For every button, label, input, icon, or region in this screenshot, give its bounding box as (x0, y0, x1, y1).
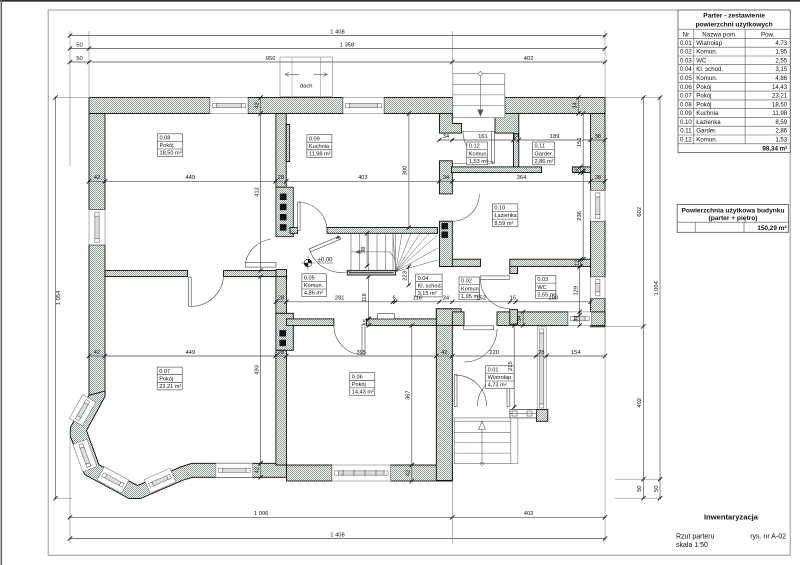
svg-text:8,59 m²: 8,59 m² (494, 221, 513, 227)
svg-text:402: 402 (637, 398, 643, 408)
svg-text:150,29 m²: 150,29 m² (757, 225, 786, 232)
svg-text:42: 42 (406, 470, 412, 476)
svg-text:Pokój: Pokój (160, 143, 174, 149)
svg-text:1 004: 1 004 (654, 280, 660, 295)
svg-text:Pokój: Pokój (159, 376, 173, 382)
svg-text:34: 34 (443, 296, 450, 302)
svg-text:0.02: 0.02 (680, 49, 692, 56)
svg-text:0.02: 0.02 (461, 279, 472, 285)
svg-text:WC: WC (537, 285, 546, 291)
svg-text:0.07: 0.07 (680, 93, 692, 100)
svg-text:Pokój: Pokój (696, 93, 711, 100)
svg-text:0.09: 0.09 (680, 110, 692, 117)
svg-text:Kl. schod.: Kl. schod. (696, 66, 723, 73)
svg-text:402: 402 (524, 56, 534, 62)
svg-text:98: 98 (361, 246, 367, 252)
svg-text:Pokój: Pokój (696, 101, 711, 108)
svg-text:4,86 m²: 4,86 m² (304, 291, 323, 297)
svg-text:0.08: 0.08 (680, 101, 692, 108)
svg-text:skala 1:50: skala 1:50 (676, 542, 708, 549)
svg-text:956: 956 (266, 56, 276, 62)
svg-text:14,43 m²: 14,43 m² (352, 390, 374, 396)
svg-text:198: 198 (548, 296, 558, 302)
svg-text:dach: dach (300, 84, 313, 90)
svg-text:38: 38 (595, 134, 601, 140)
svg-text:403: 403 (358, 175, 368, 181)
svg-text:1 358: 1 358 (340, 42, 355, 48)
svg-text:161: 161 (478, 134, 488, 140)
svg-text:189: 189 (550, 134, 560, 140)
svg-text:395: 395 (356, 350, 366, 356)
svg-text:152: 152 (476, 296, 486, 302)
svg-text:449: 449 (185, 175, 195, 181)
svg-text:Komun.: Komun. (304, 283, 324, 289)
svg-text:42: 42 (441, 350, 447, 356)
svg-text:rys. nr A-02: rys. nr A-02 (750, 534, 786, 541)
svg-text:0.01: 0.01 (488, 368, 499, 374)
svg-text:28: 28 (278, 296, 284, 302)
svg-text:116: 116 (413, 296, 422, 302)
svg-text:12: 12 (575, 260, 581, 266)
svg-text:1,53: 1,53 (775, 137, 787, 144)
svg-text:Parter - zestawienie: Parter - zestawienie (703, 13, 765, 20)
svg-text:42: 42 (254, 102, 260, 108)
svg-text:11,98: 11,98 (772, 110, 787, 117)
svg-text:42: 42 (94, 350, 100, 356)
svg-text:Rzut parteru: Rzut parteru (676, 534, 715, 541)
svg-text:0.03: 0.03 (537, 277, 548, 283)
svg-text:Kuchnia: Kuchnia (309, 144, 330, 150)
svg-text:151: 151 (577, 137, 583, 147)
svg-text:449: 449 (185, 350, 195, 356)
svg-text:602: 602 (637, 207, 643, 217)
svg-text:11,98 m²: 11,98 m² (309, 152, 331, 158)
svg-text:0.04: 0.04 (680, 66, 692, 73)
svg-text:34: 34 (443, 134, 450, 140)
svg-text:34: 34 (573, 315, 579, 322)
svg-text:34: 34 (572, 102, 578, 109)
svg-text:Garder.: Garder. (535, 151, 554, 157)
svg-text:Nazwa pom.: Nazwa pom. (702, 32, 737, 39)
svg-text:50: 50 (76, 56, 82, 62)
svg-text:Komun.: Komun. (696, 75, 717, 82)
svg-text:Łazienka: Łazienka (494, 213, 517, 219)
svg-text:8,59: 8,59 (775, 119, 787, 126)
svg-text:50: 50 (654, 485, 660, 491)
svg-text:(parter + piętro): (parter + piętro) (709, 215, 758, 222)
svg-text:118: 118 (362, 293, 368, 302)
svg-text:236: 236 (577, 211, 583, 221)
svg-text:2,86: 2,86 (775, 128, 787, 135)
svg-text:34: 34 (443, 175, 450, 181)
svg-text:Kl. schod.: Kl. schod. (418, 283, 443, 289)
svg-text:1,95: 1,95 (775, 49, 787, 56)
svg-text:0.11: 0.11 (535, 144, 545, 150)
svg-text:98,34 m²: 98,34 m² (762, 145, 787, 152)
svg-text:0.08: 0.08 (160, 136, 171, 142)
svg-text:18,50: 18,50 (772, 101, 788, 108)
svg-text:1,53 m²: 1,53 m² (469, 159, 488, 165)
svg-text:0.10: 0.10 (680, 119, 692, 126)
svg-text:0.05: 0.05 (680, 75, 692, 82)
svg-text:14: 14 (513, 134, 520, 140)
svg-text:Komun.: Komun. (461, 286, 481, 292)
svg-text:364: 364 (517, 175, 527, 181)
svg-text:60: 60 (574, 167, 580, 173)
svg-text:0.03: 0.03 (680, 57, 692, 64)
svg-text:0.04: 0.04 (418, 276, 429, 282)
svg-text:23,21: 23,21 (772, 93, 788, 100)
svg-text:Komun.: Komun. (469, 151, 489, 157)
svg-text:Łazienka: Łazienka (696, 119, 721, 126)
svg-text:50: 50 (76, 42, 82, 48)
svg-text:1 054: 1 054 (56, 290, 62, 305)
svg-text:Pow.: Pow. (761, 32, 775, 39)
svg-text:42: 42 (254, 467, 260, 473)
svg-text:15: 15 (510, 296, 516, 302)
svg-text:0.01: 0.01 (680, 40, 692, 47)
svg-text:1 408: 1 408 (330, 29, 345, 35)
svg-text:0.12: 0.12 (680, 137, 692, 144)
svg-text:0.10: 0.10 (494, 206, 505, 212)
svg-text:0.09: 0.09 (309, 136, 320, 142)
svg-text:34: 34 (517, 315, 523, 322)
svg-text:0.05: 0.05 (304, 276, 315, 282)
svg-text:4,73 m²: 4,73 m² (488, 383, 507, 389)
svg-text:493: 493 (254, 365, 260, 375)
svg-text:3,15: 3,15 (775, 66, 787, 73)
svg-text:Pokój: Pokój (696, 84, 711, 91)
svg-text:15: 15 (363, 319, 369, 325)
svg-text:Garder.: Garder. (696, 128, 717, 135)
svg-text:223: 223 (403, 271, 409, 281)
svg-text:281: 281 (335, 296, 345, 302)
svg-text:WC: WC (696, 57, 707, 64)
svg-text:1 408: 1 408 (330, 532, 345, 538)
svg-text:50: 50 (637, 485, 643, 491)
svg-text:402: 402 (524, 511, 534, 517)
svg-text:0.12: 0.12 (469, 144, 480, 150)
svg-text:Nr: Nr (683, 32, 690, 39)
svg-text:129: 129 (573, 286, 579, 296)
svg-text:28: 28 (538, 350, 544, 356)
svg-text:4,86: 4,86 (775, 75, 787, 82)
svg-text:215: 215 (508, 361, 514, 371)
svg-text:38: 38 (595, 175, 601, 181)
svg-text:2,55: 2,55 (775, 57, 787, 64)
svg-text:18,50 m²: 18,50 m² (160, 151, 182, 157)
svg-text:23,21 m²: 23,21 m² (159, 384, 181, 390)
svg-text:0.06: 0.06 (680, 84, 692, 91)
svg-text:0.06: 0.06 (352, 374, 363, 380)
svg-text:220: 220 (489, 350, 499, 356)
svg-text:2,86 m²: 2,86 m² (535, 159, 554, 165)
svg-text:28: 28 (278, 350, 284, 356)
svg-text:Wiatrołap: Wiatrołap (696, 40, 722, 47)
svg-text:300: 300 (403, 166, 409, 176)
svg-text:Pokój: Pokój (352, 382, 366, 388)
svg-text:28: 28 (278, 175, 284, 181)
svg-text:Powierzchnia użytkowa budynku: Powierzchnia użytkowa budynku (682, 207, 785, 214)
svg-text:367: 367 (406, 390, 412, 400)
svg-text:1 006: 1 006 (254, 511, 269, 517)
svg-text:Komun.: Komun. (696, 49, 717, 56)
svg-text:0.11: 0.11 (680, 128, 692, 135)
svg-text:Inwentaryzacja: Inwentaryzacja (704, 513, 759, 522)
svg-text:Komun.: Komun. (696, 137, 717, 144)
svg-text:4,73: 4,73 (775, 40, 787, 47)
svg-text:412: 412 (254, 187, 260, 197)
svg-text:Wiatrołap: Wiatrołap (488, 375, 512, 381)
svg-text:6: 6 (392, 296, 395, 302)
svg-text:0.07: 0.07 (159, 369, 170, 375)
svg-text:154: 154 (571, 350, 581, 356)
svg-text:Kuchnia: Kuchnia (696, 110, 719, 117)
svg-text:powierzchni użytkowych: powierzchni użytkowych (695, 22, 772, 29)
svg-text:14,43: 14,43 (772, 84, 788, 91)
svg-text:42: 42 (94, 175, 100, 181)
